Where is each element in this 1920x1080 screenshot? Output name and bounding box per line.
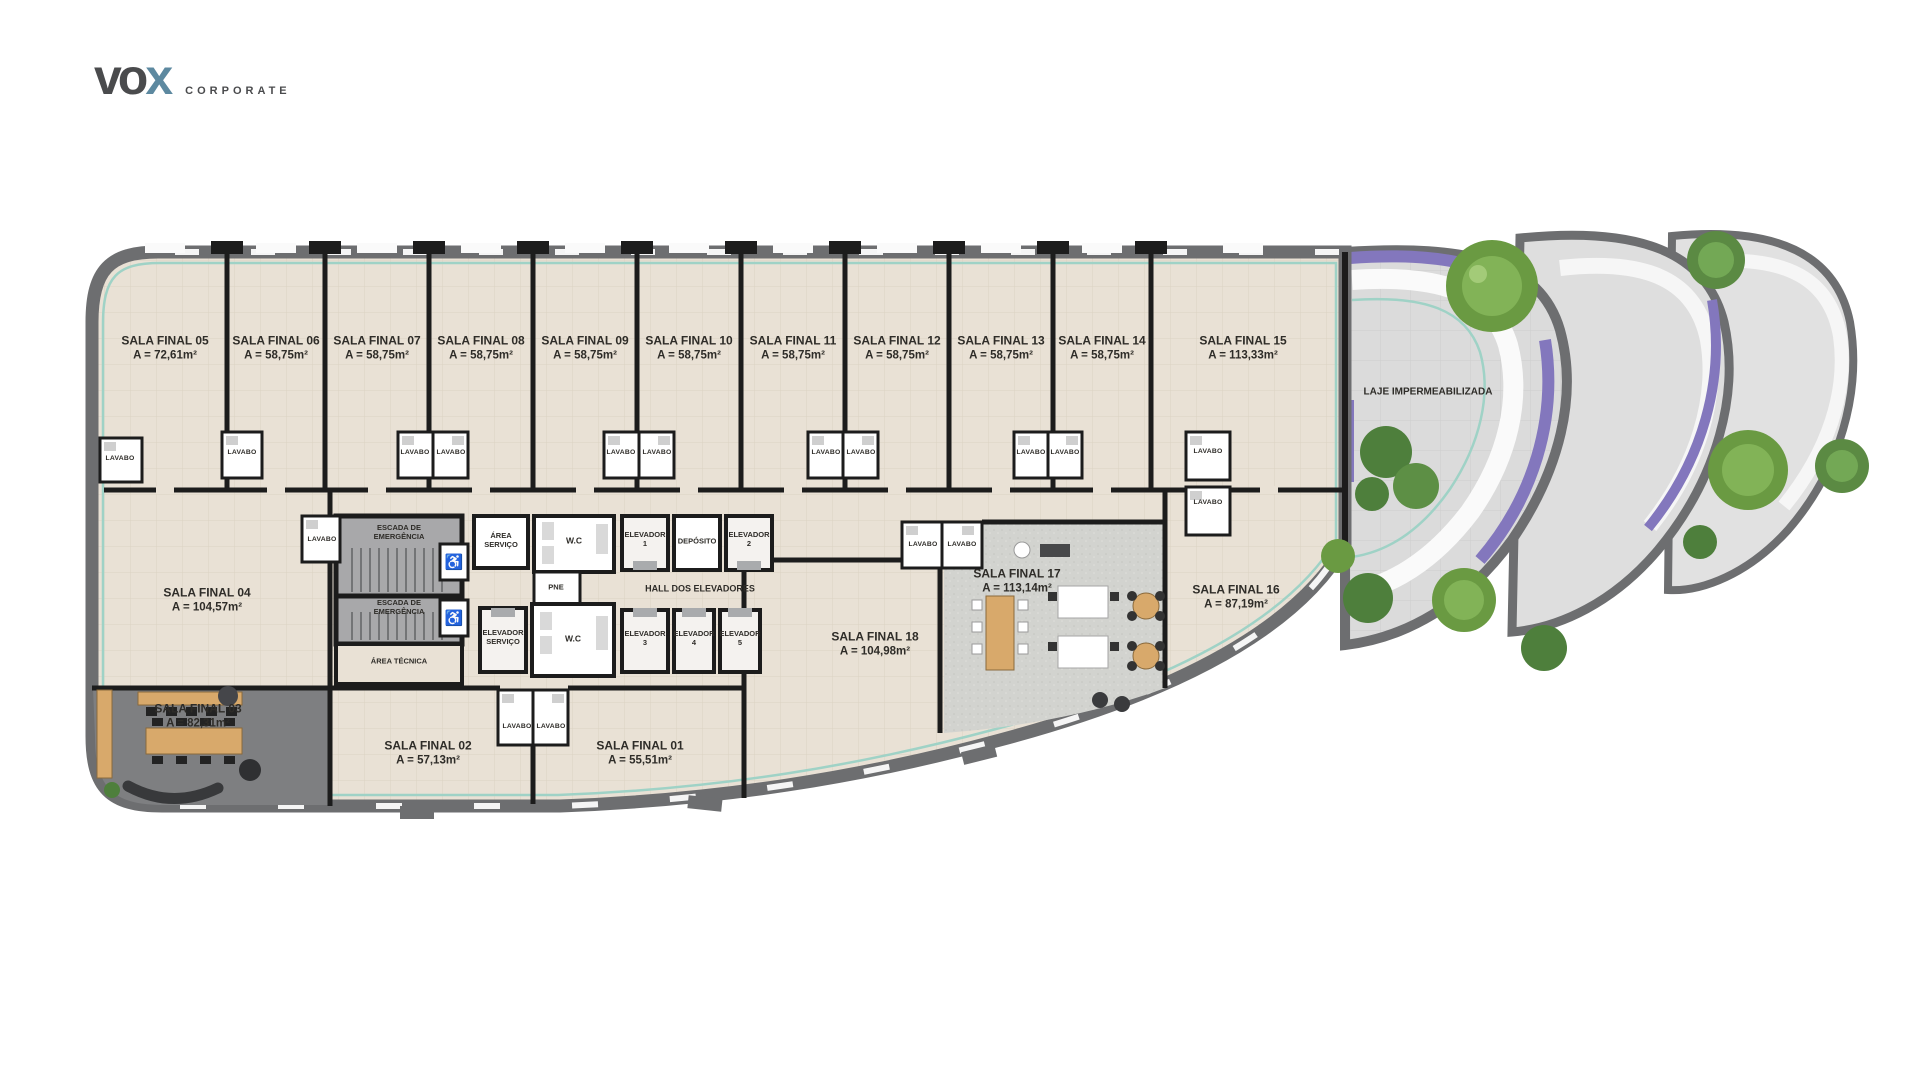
- room-label-sala-final-08: SALA FINAL 08A = 58,75m²: [437, 333, 524, 362]
- hall-elevadores-label: HALL DOS ELEVADORES: [645, 583, 755, 594]
- deposito-label: DEPÓSITO: [678, 537, 717, 546]
- laje-label: LAJE IMPERMEABILIZADA: [1363, 386, 1493, 399]
- room-label-sala-final-15: SALA FINAL 15A = 113,33m²: [1199, 333, 1286, 362]
- lavabo-label: LAVABO: [437, 449, 466, 457]
- room-label-sala-final-04: SALA FINAL 04A = 104,57m²: [163, 585, 250, 614]
- stair-label-2: ESCADA DE EMERGÊNCIA: [364, 598, 434, 616]
- lavabo-label: LAVABO: [537, 723, 566, 731]
- elevator-1-label: ELEVADOR1: [624, 530, 665, 548]
- lavabo-label: LAVABO: [106, 455, 135, 463]
- wc-label-1: W.C: [566, 536, 582, 547]
- lavabo-label: LAVABO: [607, 449, 636, 457]
- room-label-sala-final-16: SALA FINAL 16A = 87,19m²: [1192, 582, 1279, 611]
- lavabo-label: LAVABO: [1051, 449, 1080, 457]
- room-label-sala-final-12: SALA FINAL 12A = 58,75m²: [853, 333, 940, 362]
- room-label-sala-final-13: SALA FINAL 13A = 58,75m²: [957, 333, 1044, 362]
- room-label-sala-final-05: SALA FINAL 05A = 72,61m²: [121, 333, 208, 362]
- wc-label-2: W.C: [565, 634, 581, 645]
- area-tecnica-label: ÁREA TÉCNICA: [371, 657, 427, 666]
- elevator-4-label: ELEVADOR4: [673, 629, 714, 647]
- lavabo-label: LAVABO: [1017, 449, 1046, 457]
- lavabo-label: LAVABO: [401, 449, 430, 457]
- wheelchair-icon: ♿: [445, 553, 464, 571]
- lavabo-label: LAVABO: [847, 449, 876, 457]
- facade-tabs: [145, 241, 1263, 254]
- stair-label-1: ESCADA DE EMERGÊNCIA: [364, 523, 434, 541]
- room-label-sala-final-06: SALA FINAL 06A = 58,75m²: [232, 333, 319, 362]
- lavabo-label: LAVABO: [812, 449, 841, 457]
- room-label-sala-final-18: SALA FINAL 18A = 104,98m²: [831, 629, 918, 658]
- elevator-2-label: ELEVADOR2: [728, 530, 769, 548]
- elevator-3-label: ELEVADOR3: [624, 629, 665, 647]
- lavabo-label: LAVABO: [948, 541, 977, 549]
- lavabo-label: LAVABO: [503, 723, 532, 731]
- lavabo-label: LAVABO: [308, 536, 337, 544]
- room-label-sala-final-09: SALA FINAL 09A = 58,75m²: [541, 333, 628, 362]
- room-label-sala-final-01: SALA FINAL 01A = 55,51m²: [596, 738, 683, 767]
- area-servico-label: ÁREA SERVIÇO: [478, 531, 524, 549]
- floorplan-page: vo x CORPORATE: [0, 0, 1920, 1080]
- lavabo-label: LAVABO: [1194, 499, 1223, 507]
- lavabo-label: LAVABO: [228, 449, 257, 457]
- room-label-sala-final-11: SALA FINAL 11A = 58,75m²: [750, 333, 837, 362]
- wheelchair-icon: ♿: [445, 609, 464, 627]
- terrace-lobes: [1345, 234, 1853, 645]
- lavabo-label: LAVABO: [1194, 448, 1223, 456]
- room-label-sala-final-03: SALA FINAL 03A = 82,31m²: [154, 701, 241, 730]
- room-label-sala-final-02: SALA FINAL 02A = 57,13m²: [384, 738, 471, 767]
- lavabo-label: LAVABO: [909, 541, 938, 549]
- lavabo-label: LAVABO: [643, 449, 672, 457]
- room-label-sala-final-17: SALA FINAL 17A = 113,14m²: [973, 566, 1060, 595]
- room-label-sala-final-14: SALA FINAL 14A = 58,75m²: [1058, 333, 1145, 362]
- pne-label: PNE: [548, 583, 563, 592]
- room-label-sala-final-07: SALA FINAL 07A = 58,75m²: [333, 333, 420, 362]
- elevator-5-label: ELEVADOR5: [719, 629, 760, 647]
- room-label-sala-final-10: SALA FINAL 10A = 58,75m²: [645, 333, 732, 362]
- elevator-servico-label: ELEVADORSERVIÇO: [482, 628, 523, 646]
